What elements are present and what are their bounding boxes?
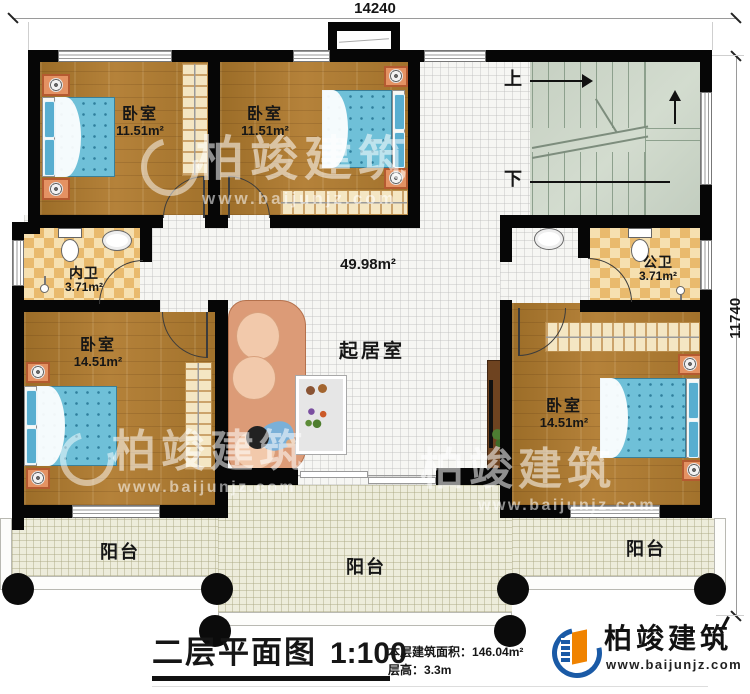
stair-up-line <box>530 80 582 82</box>
wall <box>578 228 590 258</box>
stats-area-value: 146.04m² <box>472 645 523 659</box>
stats-area: 本层建筑面积：146.04m² <box>388 646 523 659</box>
railing-left-bottom <box>12 576 218 590</box>
room-area: 11.51m² <box>225 124 305 138</box>
stair-landing-line <box>645 140 700 141</box>
brand-name: 柏竣建筑 <box>604 624 732 655</box>
wall <box>28 50 40 232</box>
person-head <box>246 426 269 449</box>
door-leaf <box>228 176 230 218</box>
stair-up-arrow <box>582 74 593 88</box>
wall <box>228 468 298 485</box>
room-area: 11.51m² <box>100 124 180 138</box>
room-area: 3.71m² <box>626 270 690 283</box>
stair-down-line <box>530 181 670 183</box>
extension-line <box>712 55 744 56</box>
pillow <box>688 421 699 458</box>
pillow <box>44 139 55 176</box>
window <box>700 240 712 290</box>
pillow <box>26 428 37 464</box>
wardrobe <box>280 190 408 215</box>
room-area: 14.51m² <box>58 355 138 369</box>
pillow <box>394 132 405 168</box>
wall <box>408 62 420 228</box>
logo-building-orange-icon <box>572 629 587 664</box>
wall <box>208 62 220 215</box>
lamp-icon <box>49 182 63 196</box>
lamp-icon <box>31 365 45 379</box>
window <box>12 240 24 286</box>
wall <box>500 300 512 518</box>
door-leaf <box>206 312 208 358</box>
pillow <box>26 390 37 426</box>
balcony-label: 阳台 <box>610 540 682 560</box>
wall <box>215 300 228 518</box>
stats-height-label: 层高： <box>388 663 424 677</box>
room-label: 卧室 <box>225 106 305 124</box>
floor-drain <box>676 286 685 295</box>
room-label: 卧室 <box>524 398 604 416</box>
balcony-center-floor <box>218 485 512 612</box>
column <box>497 573 529 605</box>
floor-plan: 卧室 11.51m² 卧室 11.51m² 卧室 14.51m² 卧室 14.5… <box>0 0 750 694</box>
stair-landing-arrow <box>669 90 681 101</box>
wall <box>140 228 152 262</box>
sofa-cushion <box>236 312 280 360</box>
pillow <box>44 101 55 138</box>
stats-height-value: 3.3m <box>424 663 451 677</box>
room-area: 49.98m² <box>318 257 418 274</box>
window <box>570 505 660 518</box>
sliding-door-panel <box>300 471 368 478</box>
window <box>700 92 712 185</box>
plan-title: 二层平面图 <box>152 636 317 670</box>
stair-treads-upper <box>532 62 645 128</box>
wall <box>436 468 512 485</box>
toilet-bowl <box>61 239 79 262</box>
room-area: 14.51m² <box>524 416 604 430</box>
railing-center-bottom <box>218 612 512 626</box>
stats-height: 层高：3.3m <box>388 664 451 677</box>
wall <box>28 215 163 228</box>
table-flowers <box>303 402 331 434</box>
column <box>494 615 526 647</box>
title-underline <box>152 676 390 681</box>
wall <box>205 215 228 228</box>
column <box>201 573 233 605</box>
drain-stem <box>44 276 46 284</box>
stair-treads-lower <box>532 152 645 215</box>
brand-url: www.baijunjz.com <box>606 658 742 672</box>
toilet-tank <box>58 228 82 238</box>
lamp-icon <box>683 357 697 371</box>
window <box>293 50 330 62</box>
floor-drain <box>40 284 49 293</box>
dimension-top-value: 14240 <box>330 1 420 18</box>
door-leaf <box>518 308 520 356</box>
table-bowl <box>318 384 327 393</box>
sofa-cushion <box>232 356 276 400</box>
railing-right-bottom <box>512 576 714 590</box>
pillow <box>394 94 405 130</box>
sink <box>102 230 132 251</box>
lamp-icon <box>687 463 701 477</box>
balcony-label: 阳台 <box>84 543 156 563</box>
column <box>694 573 726 605</box>
pillow <box>688 382 699 419</box>
window <box>72 505 160 518</box>
table-bowl <box>306 386 315 395</box>
room-label: 卧室 <box>58 337 138 355</box>
dimension-line-top <box>12 18 736 19</box>
title-baseline <box>152 686 708 687</box>
stair-landing-arrow-line <box>674 98 676 124</box>
logo-building-blue-icon <box>561 638 570 662</box>
window <box>58 50 172 62</box>
room-area: 3.71m² <box>52 281 116 294</box>
lamp-icon <box>389 171 403 185</box>
lamp-icon <box>31 471 45 485</box>
lamp-icon <box>49 78 63 92</box>
column <box>2 573 34 605</box>
extension-line <box>28 22 29 50</box>
toilet-tank <box>628 228 652 238</box>
wall <box>500 215 512 262</box>
dimension-right-value: 11740 <box>728 288 745 348</box>
sliding-door-panel <box>368 477 436 484</box>
stairs-down-label: 下 <box>500 170 526 190</box>
stair-flight-divider <box>645 62 646 215</box>
room-label: 起居室 <box>320 342 424 363</box>
stair-landing-line <box>645 128 700 129</box>
balcony-label: 阳台 <box>330 558 402 578</box>
lamp-icon <box>389 69 403 83</box>
wall <box>512 215 712 228</box>
wall <box>270 215 420 228</box>
extension-line <box>716 615 744 616</box>
wardrobe <box>185 362 212 470</box>
stats-area-label: 本层建筑面积： <box>388 645 472 659</box>
door-leaf <box>203 176 205 218</box>
extension-line <box>712 22 713 50</box>
wardrobe <box>545 322 700 352</box>
stairs-up-label: 上 <box>500 70 526 90</box>
brand-logo-icon <box>552 622 600 674</box>
window <box>424 50 486 62</box>
sink <box>534 228 564 250</box>
room-label: 卧室 <box>100 106 180 124</box>
